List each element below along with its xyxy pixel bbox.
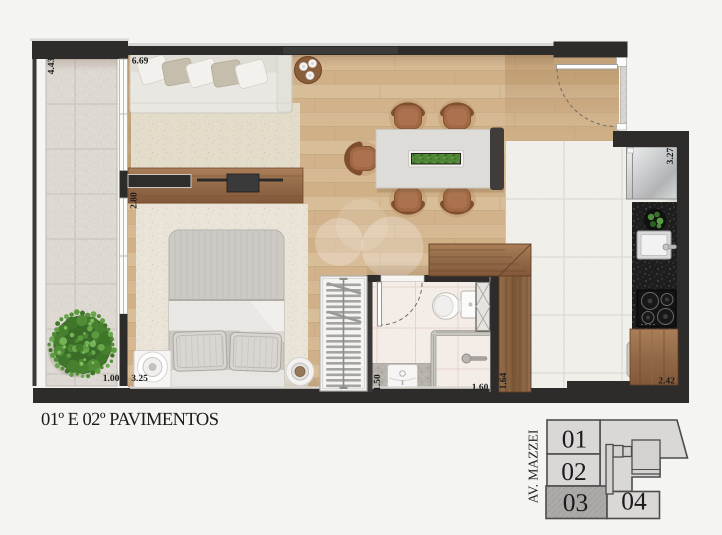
svg-text:3.25: 3.25 xyxy=(131,374,148,384)
svg-text:6.69: 6.69 xyxy=(132,57,149,67)
svg-text:2.80: 2.80 xyxy=(130,192,140,209)
svg-text:01: 01 xyxy=(562,425,588,454)
svg-text:4.43: 4.43 xyxy=(47,57,57,74)
svg-text:03: 03 xyxy=(563,488,589,517)
svg-text:1.50: 1.50 xyxy=(373,374,383,391)
svg-text:02: 02 xyxy=(561,457,587,486)
svg-text:04: 04 xyxy=(621,487,647,516)
svg-text:1.00: 1.00 xyxy=(103,374,120,384)
svg-text:3.27: 3.27 xyxy=(666,147,676,164)
svg-text:1.64: 1.64 xyxy=(499,372,509,389)
svg-text:2.42: 2.42 xyxy=(658,377,675,387)
svg-text:01º E 02º PAVIMENTOS: 01º E 02º PAVIMENTOS xyxy=(41,410,219,430)
svg-text:AV. MAZZEI: AV. MAZZEI xyxy=(526,429,541,503)
svg-text:1.60: 1.60 xyxy=(472,383,489,393)
